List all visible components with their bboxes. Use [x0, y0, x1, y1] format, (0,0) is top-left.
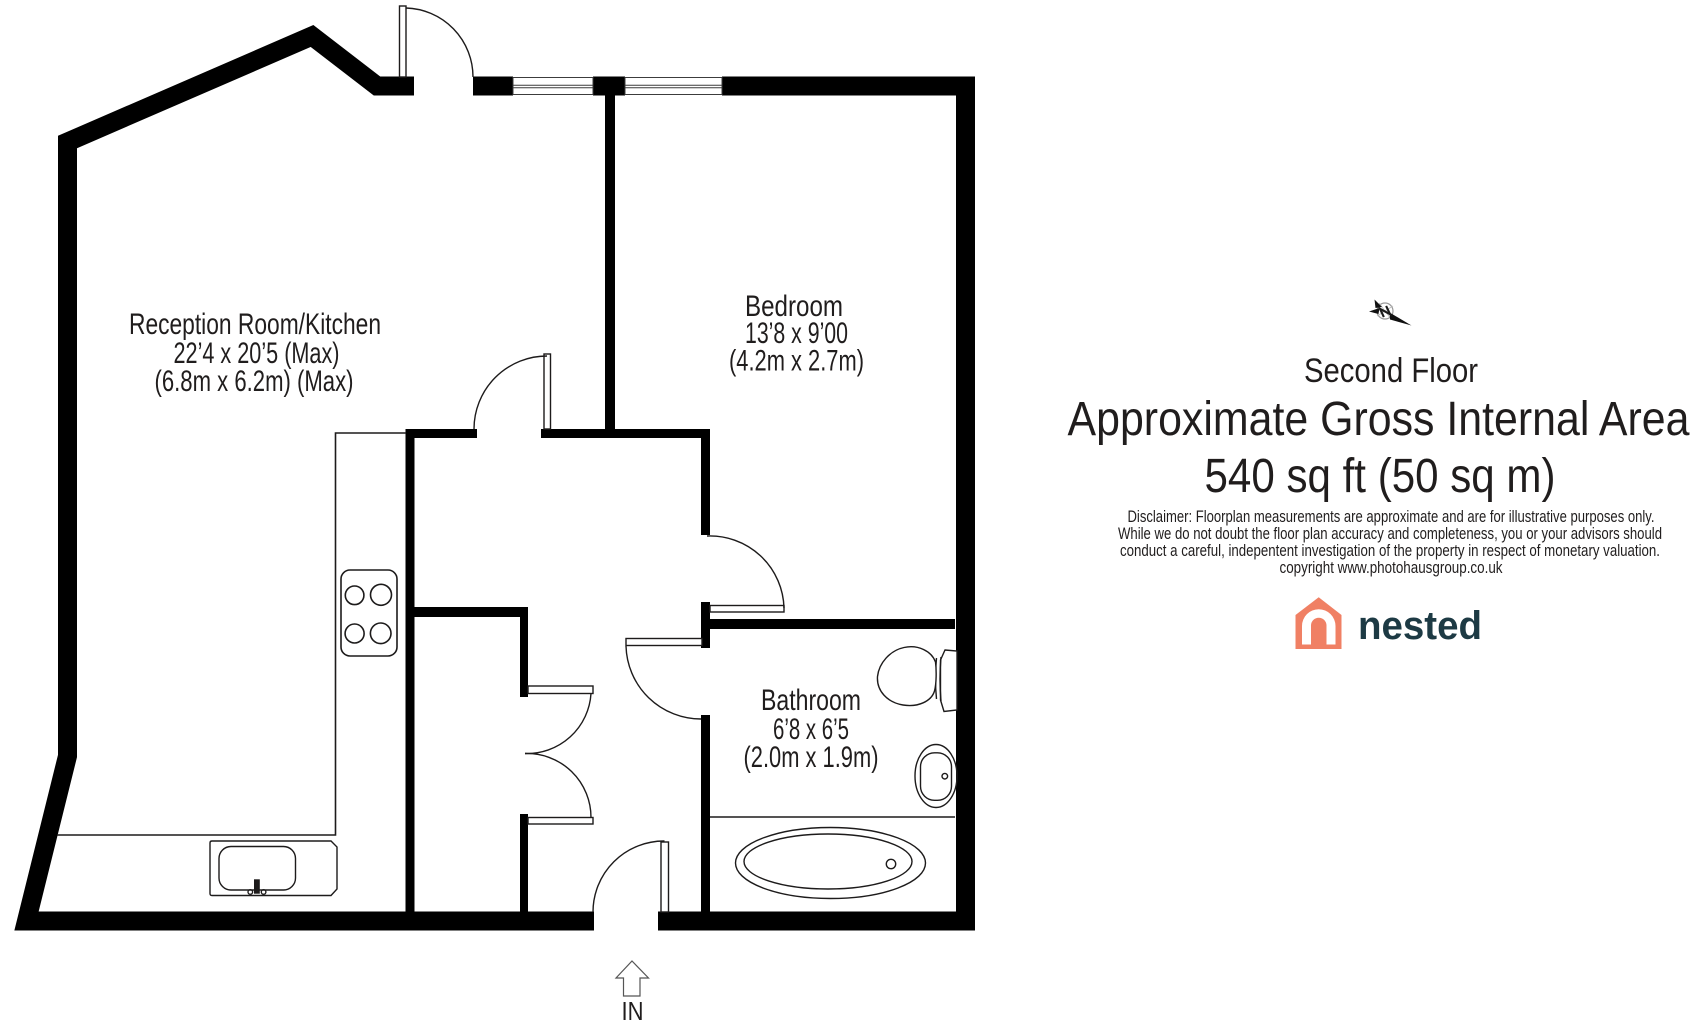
svg-text:Second Floor: Second Floor [1304, 352, 1478, 390]
svg-text:IN: IN [622, 996, 644, 1024]
svg-text:(2.0m x 1.9m): (2.0m x 1.9m) [744, 741, 879, 774]
svg-text:(6.8m x 6.2m) (Max): (6.8m x 6.2m) (Max) [155, 365, 354, 398]
svg-text:Disclaimer: Floorplan measurem: Disclaimer: Floorplan measurements are a… [1128, 508, 1655, 526]
svg-text:Approximate Gross Internal Are: Approximate Gross Internal Area [1068, 393, 1690, 446]
svg-text:While we do not doubt the floo: While we do not doubt the floor plan acc… [1118, 525, 1662, 543]
svg-text:copyright www.photohausgroup.c: copyright www.photohausgroup.co.uk [1280, 559, 1504, 577]
svg-text:540 sq ft (50 sq m): 540 sq ft (50 sq m) [1205, 450, 1556, 503]
svg-text:(4.2m x 2.7m): (4.2m x 2.7m) [729, 345, 864, 378]
svg-text:nested: nested [1358, 604, 1482, 648]
svg-text:conduct a careful, indepentent: conduct a careful, indepentent investiga… [1120, 542, 1660, 560]
